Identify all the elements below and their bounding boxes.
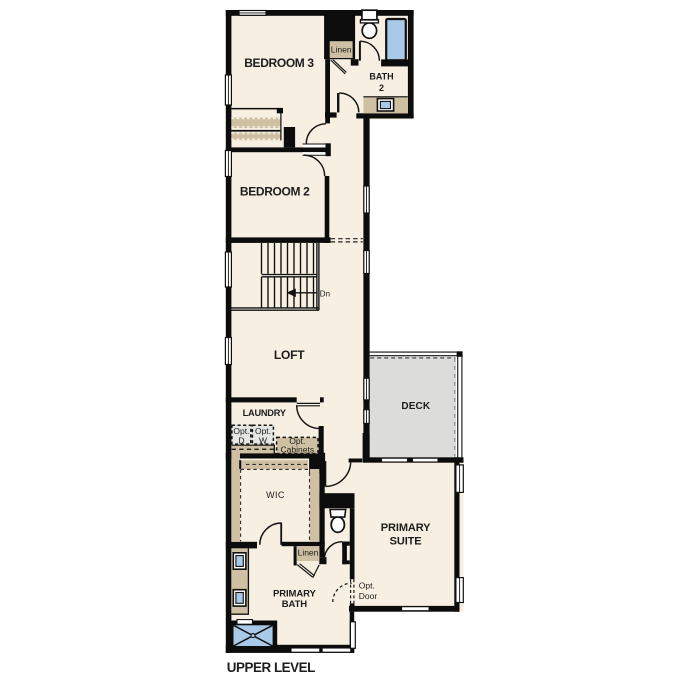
svg-text:LOFT: LOFT [274,348,305,362]
svg-text:BEDROOM 3: BEDROOM 3 [244,56,314,70]
svg-text:UPPER LEVEL: UPPER LEVEL [227,660,315,675]
svg-text:Dn: Dn [320,289,330,298]
svg-text:Opt.: Opt. [359,581,375,591]
svg-text:2: 2 [379,83,384,93]
svg-text:Linen: Linen [298,548,319,558]
svg-text:WIC: WIC [266,490,285,500]
svg-text:PRIMARY: PRIMARY [273,589,317,600]
svg-text:Linen: Linen [331,45,352,55]
svg-text:Door: Door [359,591,378,601]
svg-text:BATH: BATH [369,72,393,82]
svg-text:Cabinets: Cabinets [281,445,315,455]
svg-text:W: W [259,435,267,445]
svg-text:D: D [238,435,244,445]
svg-text:BATH: BATH [282,599,308,610]
svg-text:DECK: DECK [401,401,430,412]
svg-text:BEDROOM 2: BEDROOM 2 [240,184,310,198]
svg-text:SUITE: SUITE [390,536,422,548]
svg-text:PRIMARY: PRIMARY [381,522,431,534]
svg-text:LAUNDRY: LAUNDRY [243,408,286,418]
